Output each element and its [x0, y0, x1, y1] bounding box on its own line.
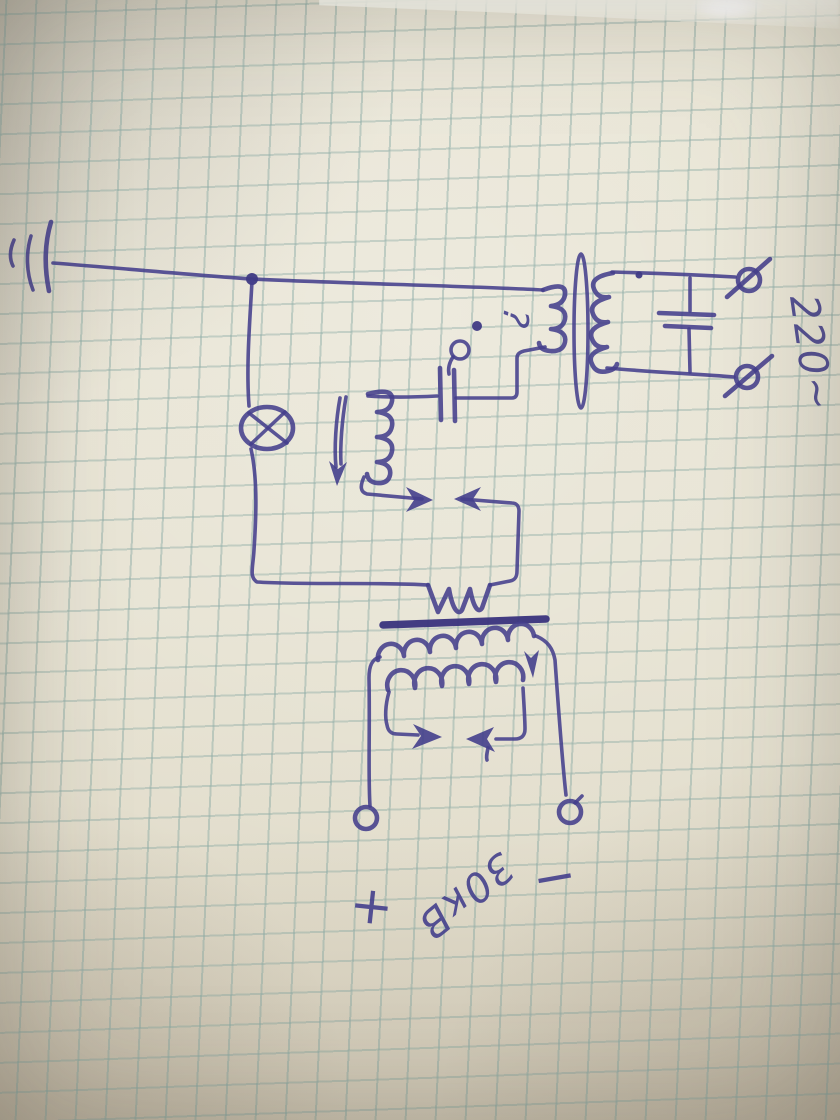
label-minus-sign: − [528, 844, 581, 911]
indicator-lamp-icon [241, 407, 293, 449]
coil-arrow-2 [341, 397, 346, 464]
upper-spark-gap [361, 477, 519, 585]
t1-bottom-lead [607, 368, 734, 377]
t1-left-winding [539, 286, 565, 351]
mains-capacitor-icon [659, 278, 714, 372]
label-mains-voltage: 220~ [780, 292, 840, 415]
unknown-component-marks [449, 321, 482, 374]
t1-core [574, 254, 588, 408]
t2-secondary-row2 [387, 662, 523, 690]
output-terminal-plus [355, 807, 377, 829]
circuit-drawing: 220~ 30кВ + − ? [0, 0, 840, 1120]
choke-coil [329, 392, 392, 486]
t1-right-winding [591, 273, 617, 372]
label-output-voltage: 30кВ [408, 843, 523, 948]
t2-primary-zigzag [428, 585, 490, 612]
output-terminal-minus [559, 796, 582, 823]
step-down-transformer [539, 254, 735, 408]
induction-coil [369, 585, 566, 806]
t1-top-lead [612, 272, 735, 277]
t2-winding-arrow [524, 650, 539, 678]
mains-wire [53, 263, 543, 290]
lower-spark-gap [412, 724, 495, 760]
photo-of-circuit-sketch: 220~ 30кВ + − ? [0, 0, 840, 1120]
label-question-mark: ? [493, 304, 537, 330]
ground-icon [10, 222, 51, 291]
coil-winding [367, 392, 392, 483]
t2-secondary-row1 [378, 624, 534, 660]
label-plus-sign: + [347, 874, 397, 938]
